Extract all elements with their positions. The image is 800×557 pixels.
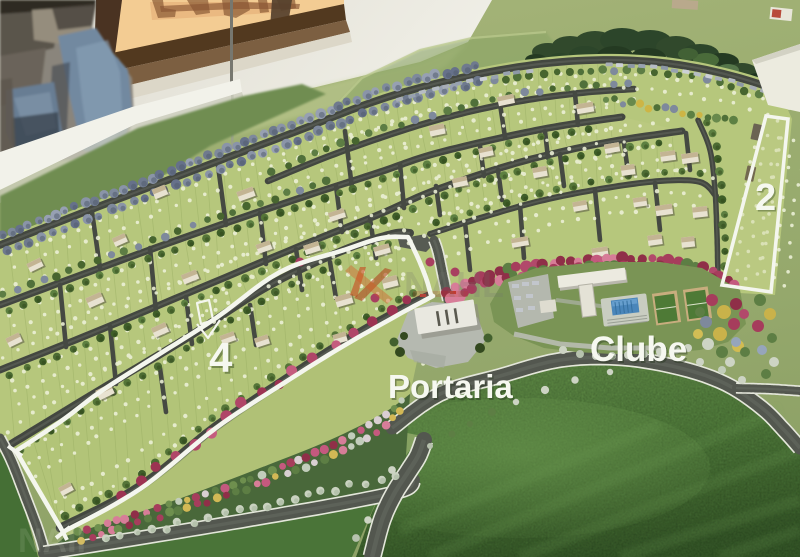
- svg-text:Clube: Clube: [590, 330, 687, 369]
- svg-text:4: 4: [209, 334, 233, 381]
- svg-text:2: 2: [755, 177, 776, 219]
- svg-text:NAHL: NAHL: [404, 264, 504, 305]
- svg-text:Portaria: Portaria: [388, 368, 513, 405]
